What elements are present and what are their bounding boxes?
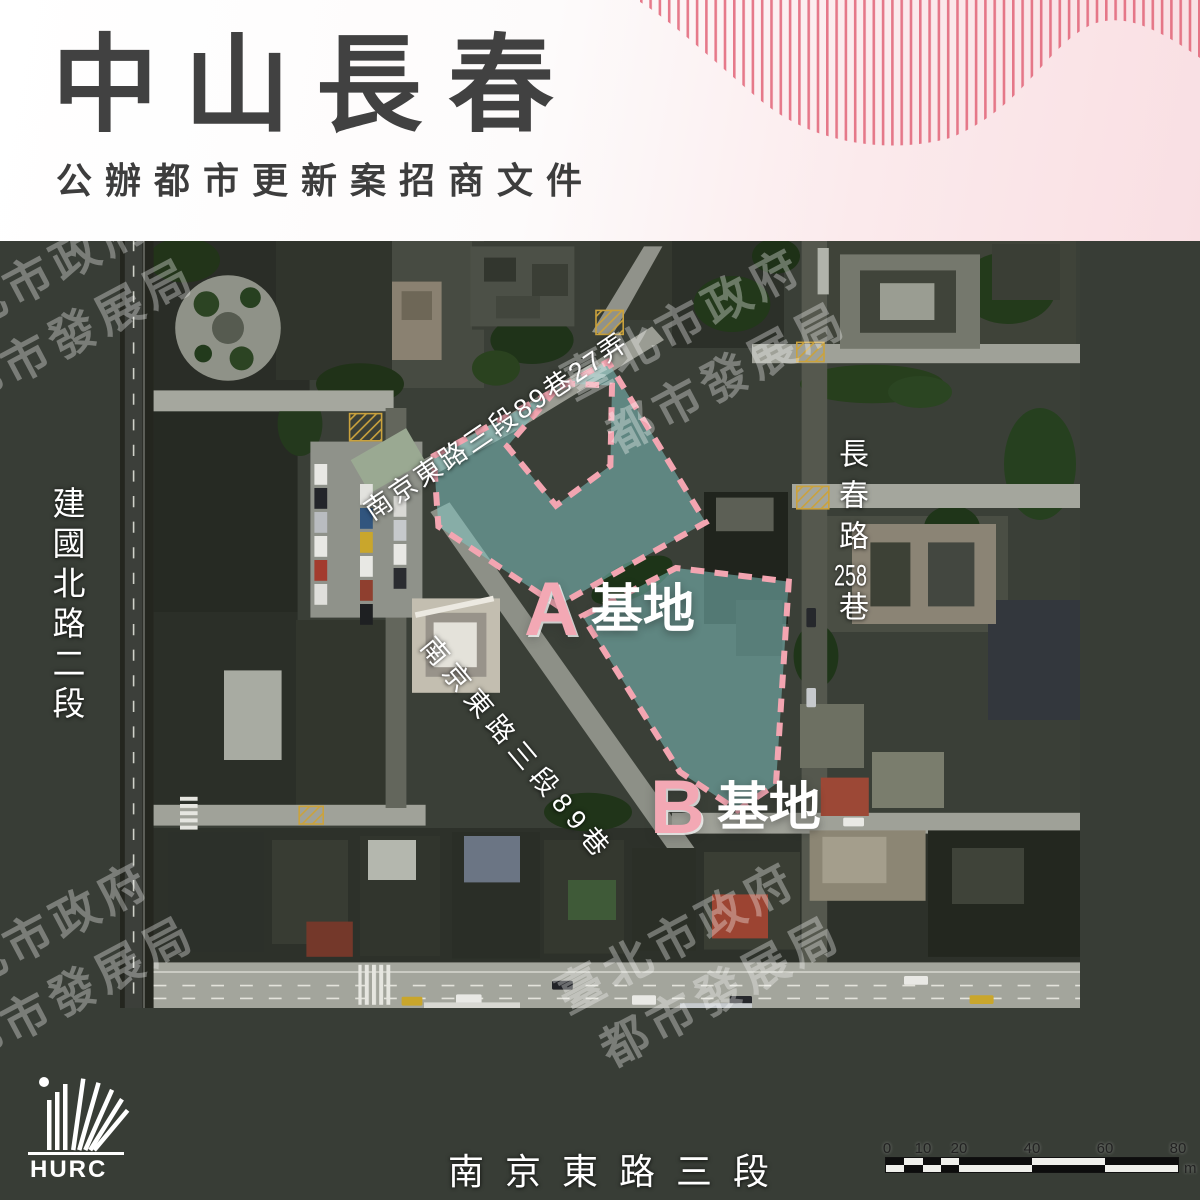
- scale-bar-unit: m: [1184, 1160, 1197, 1177]
- site-a-label: A 基地: [524, 572, 695, 648]
- hurc-logo: HURC: [24, 1068, 134, 1198]
- document-header: 中山長春 公辦都市更新案招商文件: [0, 0, 1200, 241]
- site-b-suffix: 基地: [717, 782, 821, 834]
- scale-bar: [885, 1157, 1179, 1173]
- lane-label-changchun-258: 長春路258巷: [828, 438, 872, 632]
- page-title: 中山長春: [52, 28, 580, 145]
- page-subtitle: 公辦都市更新案招商文件: [56, 152, 595, 204]
- site-b-label: B 基地: [650, 770, 821, 846]
- site-a-letter: A: [524, 572, 579, 648]
- scale-bar-ticks: 0 10 20 40 60 80: [885, 1140, 1200, 1157]
- site-b-letter: B: [650, 770, 705, 846]
- road-label-jianguo-n-rd: 建國北路二段: [42, 486, 90, 726]
- satellite-map: 建國北路二段 南京東路三段89巷27弄 南京東路三段89巷 長春路258巷 南京…: [0, 240, 1200, 1200]
- site-a-suffix: 基地: [591, 584, 695, 636]
- document-page: 建國北路二段 南京東路三段89巷27弄 南京東路三段89巷 長春路258巷 南京…: [0, 0, 1200, 1200]
- road-label-nanjing-e-rd: 南京東路三段: [448, 1143, 790, 1195]
- pink-stripes-decoration: [640, 0, 1200, 215]
- map-scale-bar: 0 10 20 40 60 80: [885, 1140, 1200, 1180]
